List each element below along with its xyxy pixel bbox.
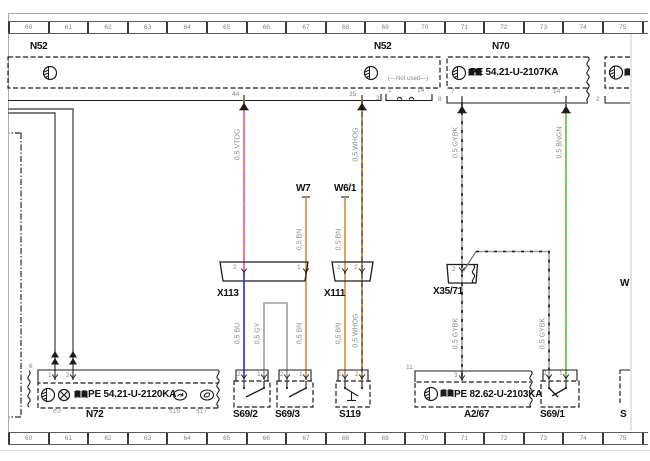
grid-ruler-bottom: 6061626364656667686970717273747576 xyxy=(8,432,648,445)
not-used-note: (—Not used—) xyxy=(380,76,436,82)
wire-label-bn-w61: 0,5 BN xyxy=(336,210,343,270)
ruler-cell: 68 xyxy=(325,433,365,444)
wire-gybk-branch xyxy=(464,252,550,379)
component-box-partial-bottom-right xyxy=(620,370,630,403)
ruler-cell: 67 xyxy=(285,433,325,444)
ruler-cell: 65 xyxy=(206,433,246,444)
ruler-cell: 62 xyxy=(87,433,127,444)
label-s692: S69/2 xyxy=(233,409,258,420)
pin-a267-3: 3 xyxy=(454,372,458,379)
page-frame xyxy=(0,13,650,451)
label-w7: W7 xyxy=(296,183,310,194)
component-box-n70 xyxy=(447,57,589,102)
conn-8: 8 xyxy=(438,96,442,103)
wires-n72 xyxy=(8,109,73,378)
ruler-cell: 65 xyxy=(206,22,246,33)
wiring-diagram-page: { "colors": { "vtog": "#e23de2", "whbase… xyxy=(0,0,650,461)
pin-nu-1: 1 xyxy=(388,87,392,94)
label-s693: S69/3 xyxy=(275,409,300,420)
lamp-icon xyxy=(59,390,70,401)
manual-book-icon xyxy=(441,389,454,397)
ground-icon xyxy=(44,67,57,80)
component-box-partial-left xyxy=(9,133,30,417)
ruler-cell: 75 xyxy=(602,22,642,33)
ruler-cell: 67 xyxy=(285,22,325,33)
ruler-cell: 70 xyxy=(404,22,444,33)
ground-icon xyxy=(453,67,466,80)
ruler-cell: 74 xyxy=(562,22,602,33)
conn-3: 3 xyxy=(376,95,380,102)
label-n70: N70 xyxy=(492,41,509,52)
label-w-partial: W xyxy=(620,278,629,289)
grid-ruler-top: 6061626364656667686970717273747576 xyxy=(8,21,648,34)
ruler-cell: 61 xyxy=(48,433,88,444)
inline-connector-icon xyxy=(239,101,249,110)
pin-s692-1: 1 xyxy=(257,371,261,378)
label-n72-pe: PE 54.21-U-2120KA xyxy=(88,389,176,400)
ruler-cell: 66 xyxy=(246,22,286,33)
pin-n72-1: 1 xyxy=(48,372,52,379)
ruler-cell: 60 xyxy=(8,22,48,33)
ruler-cell: 72 xyxy=(483,22,523,33)
pin-s691-1: 1 xyxy=(559,370,563,377)
pin-s691-2: 2 xyxy=(543,370,547,377)
wire-label-gybk-a267: 0,5 GYBK xyxy=(453,304,460,364)
conn-2: 2 xyxy=(596,96,600,103)
conn-11: 11 xyxy=(406,364,413,371)
pin-x3571-2: 2 xyxy=(452,266,456,273)
label-s691: S69/1 xyxy=(540,409,565,420)
label-s119: S119 xyxy=(339,409,361,420)
manual-book-icon xyxy=(75,390,88,398)
ruler-cell: 62 xyxy=(87,22,127,33)
conn-6: 6 xyxy=(29,363,33,370)
ruler-cell: 73 xyxy=(523,433,563,444)
connector-strips-top xyxy=(8,94,630,103)
pin-x113-2: 2 xyxy=(233,264,237,271)
ground-icon xyxy=(365,67,378,80)
label-a267: A2/67 xyxy=(464,409,489,420)
inline-connector-icon xyxy=(457,104,467,113)
ruler-cell: 61 xyxy=(48,22,88,33)
wire-label-whog-top: 0,5 WHOG xyxy=(353,115,360,175)
wire-label-bn-s119: 0,5 BN xyxy=(336,304,343,364)
ground-icon xyxy=(425,388,438,401)
ruler-cell: 64 xyxy=(166,22,206,33)
page-gutter xyxy=(630,33,650,431)
ruler-cell: 63 xyxy=(127,22,167,33)
ground-icon xyxy=(42,389,55,402)
pin-35: 35 xyxy=(349,91,356,98)
label-n52b: N52 xyxy=(374,41,391,52)
ruler-cell: 74 xyxy=(562,433,602,444)
ruler-cell: 69 xyxy=(364,22,404,33)
label-s-partial: S xyxy=(620,409,626,420)
motor-symbol-s17-icon xyxy=(201,390,214,400)
ruler-cell: 64 xyxy=(166,433,206,444)
pin-nu-14: 14 xyxy=(417,87,424,94)
inline-connector-icon xyxy=(561,104,571,113)
wire-label-bngn: 0,5 BNGN xyxy=(557,113,564,173)
pin-44: 44 xyxy=(232,91,239,98)
ruler-cell: 76 xyxy=(642,433,649,444)
label-a267-pe: PE 82.62-U-2103KA xyxy=(454,389,542,400)
label-x111: X111 xyxy=(324,288,345,299)
wire-label-bn-w7: 0,5 BN xyxy=(297,210,304,270)
pin-s693-1: 1 xyxy=(299,371,303,378)
wire-label-bn-s693: 0,5 BN xyxy=(297,304,304,364)
ruler-cell: 75 xyxy=(602,433,642,444)
ruler-cell: 63 xyxy=(127,433,167,444)
wire-label-gy: 0,5 GY xyxy=(255,304,262,364)
ground-icon xyxy=(610,66,623,79)
pin-7: 7 xyxy=(451,88,455,95)
label-n70-pe: PE 54.21-U-2107KA xyxy=(470,67,558,78)
label-s17: s17 xyxy=(196,408,207,415)
ruler-cell: 60 xyxy=(8,433,48,444)
inline-connector-icon xyxy=(357,101,367,110)
pin-s119-2: 2 xyxy=(355,371,359,378)
ruler-cell: 73 xyxy=(523,22,563,33)
pin-s692-2: 2 xyxy=(237,371,241,378)
wire-label-gybk-top: 0,5 GYBK xyxy=(453,113,460,173)
ruler-cell: 72 xyxy=(483,433,523,444)
label-x113: X113 xyxy=(217,288,239,299)
ruler-cell: 70 xyxy=(404,433,444,444)
ruler-cell: 71 xyxy=(444,433,484,444)
label-e3: e3 xyxy=(53,408,61,415)
pin-s693-2: 2 xyxy=(280,371,284,378)
ruler-cell: 69 xyxy=(364,433,404,444)
component-box-n52 xyxy=(8,57,440,88)
ruler-cell: 76 xyxy=(642,22,649,33)
label-w61: W6/1 xyxy=(334,183,356,194)
pin-x111-2: 2 xyxy=(354,264,358,271)
wire-label-vtog: 0,5 VTOG xyxy=(235,115,242,175)
pin-n72-2: 2 xyxy=(66,372,70,379)
ruler-cell: 66 xyxy=(246,433,286,444)
ruler-cell: 71 xyxy=(444,22,484,33)
wire-label-gybk-s691: 0,5 GYBK xyxy=(540,304,547,364)
label-s16: s16 xyxy=(169,408,180,415)
label-x3571: X35/71 xyxy=(433,286,463,297)
ruler-cell: 68 xyxy=(325,22,365,33)
pin-14: 14 xyxy=(553,88,560,95)
label-n52: N52 xyxy=(30,41,47,52)
wire-label-whog-bot: 0,5 WHOG xyxy=(353,301,360,361)
pin-s119-1: 1 xyxy=(338,371,342,378)
wire-gy xyxy=(264,303,287,378)
wire-label-bu: 0,5 BU xyxy=(235,304,242,364)
label-n72: N72 xyxy=(86,409,103,420)
